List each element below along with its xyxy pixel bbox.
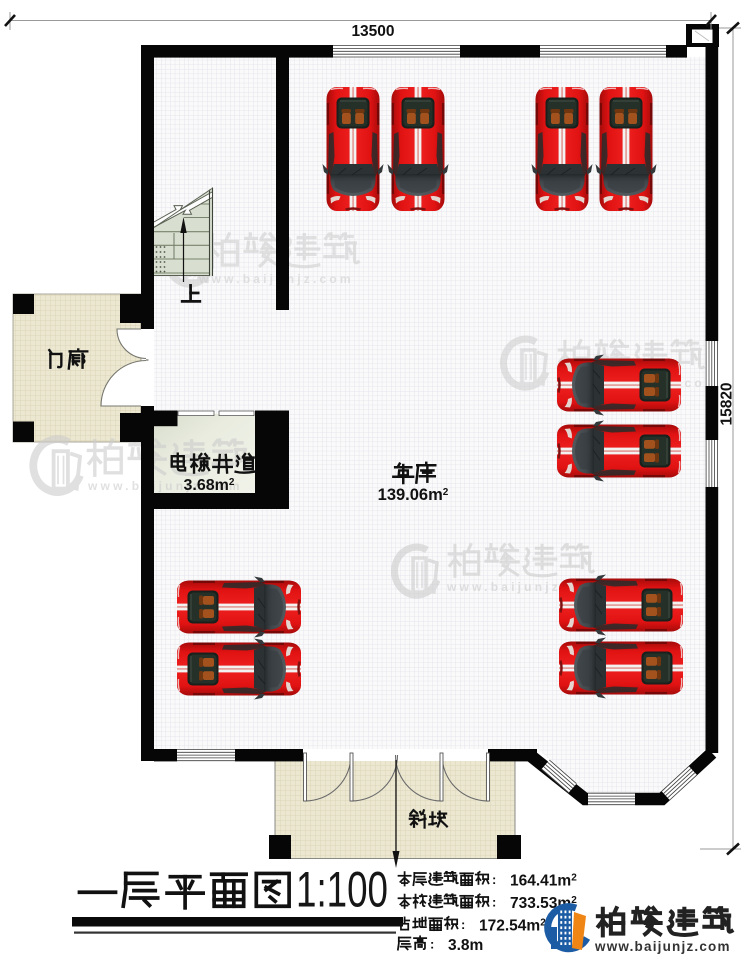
svg-text:1:100: 1:100 <box>296 862 388 918</box>
svg-text::: : <box>492 895 496 910</box>
svg-text:www.baijunjz.com: www.baijunjz.com <box>198 272 354 286</box>
svg-text:172.54m2: 172.54m2 <box>479 918 546 935</box>
svg-text:139.06m2: 139.06m2 <box>378 486 449 504</box>
svg-text:15820: 15820 <box>719 382 736 425</box>
svg-text:13500: 13500 <box>351 23 394 40</box>
svg-text::: : <box>461 917 465 932</box>
svg-text::: : <box>430 937 434 952</box>
svg-text::: : <box>492 872 496 887</box>
svg-text:164.41m2: 164.41m2 <box>510 873 577 890</box>
svg-text:3.8m: 3.8m <box>448 937 483 954</box>
svg-text:www.baijunjz.com: www.baijunjz.com <box>594 939 731 954</box>
svg-text:3.68m2: 3.68m2 <box>184 477 235 494</box>
